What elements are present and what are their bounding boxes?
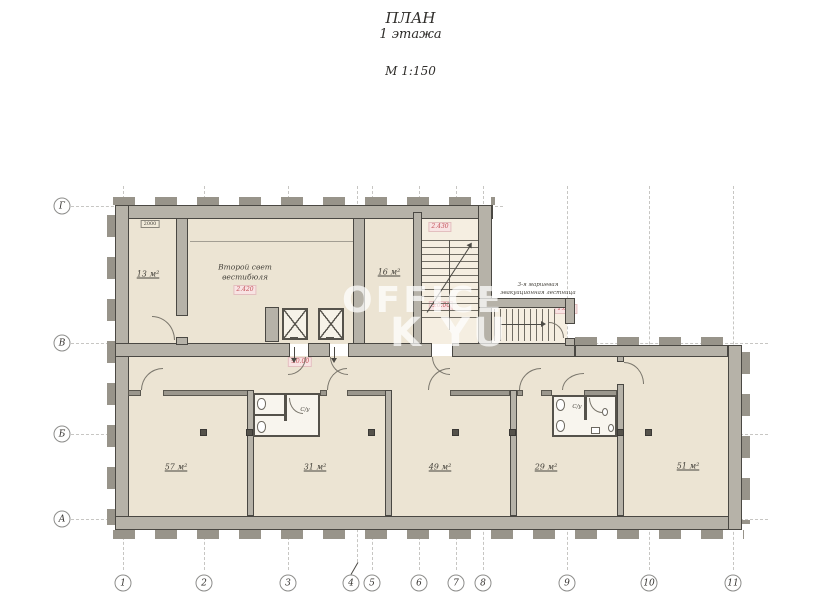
wall-wing-top xyxy=(575,345,728,357)
corridor-wall-seg xyxy=(541,390,552,396)
room-31-area-label: 31 м² xyxy=(304,463,327,472)
axis-bubble-col-3: 3 xyxy=(280,575,297,592)
wall-29-51 xyxy=(617,384,624,516)
toilet-icon xyxy=(556,399,565,411)
elevation-mark-stair-top: 2.430 xyxy=(428,222,451,232)
pilaster-strip-left xyxy=(107,215,115,525)
room-16-area-label: 16 м² xyxy=(378,268,401,277)
axis-bubble-col-9: 9 xyxy=(559,575,576,592)
column-marker xyxy=(200,429,207,436)
arrow-head xyxy=(291,358,297,366)
room-57-area-label: 57 м² xyxy=(165,463,188,472)
corridor-wall-seg xyxy=(517,390,523,396)
lobby-pier xyxy=(265,307,279,342)
axis-bubble-col-5: 5 xyxy=(364,575,381,592)
column-marker xyxy=(617,429,624,436)
corridor-wall-seg xyxy=(163,390,253,396)
urinal-icon xyxy=(608,424,614,432)
axis-bubble-col-10: 10 xyxy=(641,575,658,592)
wall-top xyxy=(115,205,493,219)
toilet-icon xyxy=(257,398,266,410)
wall-row-v-seg xyxy=(115,343,290,357)
axis-bubble-col-7: 7 xyxy=(448,575,465,592)
toilet-icon xyxy=(556,420,565,432)
vestibule-label-line1: Второй свет xyxy=(218,263,272,272)
evac-stair-note-line2: эвакуационная лестница xyxy=(500,290,575,296)
axis-bubble-col-2: 2 xyxy=(196,575,213,592)
floor-plan-canvas: ПЛАН 1 этажа М 1:150 1 2 3 4 5 6 7 8 9 1… xyxy=(0,0,821,611)
wall-row-v-seg xyxy=(308,343,330,357)
dimension-label-2000: 2000 xyxy=(141,220,160,228)
axis-bubble-row-b: Б xyxy=(54,426,71,443)
room-29-area-label: 29 м² xyxy=(535,463,558,472)
wall-left xyxy=(115,205,129,530)
room-13-area-label: 13 м² xyxy=(137,270,160,279)
sink-icon xyxy=(591,427,600,434)
elevation-mark-vestibule: 2.420 xyxy=(233,285,256,295)
column-marker xyxy=(246,429,253,436)
pilaster-strip-right xyxy=(742,352,750,524)
watermark-line2: K YU xyxy=(390,310,508,356)
corridor-wall-seg xyxy=(128,390,141,396)
axis-bubble-row-a: А xyxy=(54,511,71,528)
arrow-head xyxy=(331,358,337,366)
wall-31-49 xyxy=(385,390,392,516)
column-marker xyxy=(509,429,516,436)
elevator-shaft xyxy=(282,308,308,340)
down-arrow-icon xyxy=(334,347,335,361)
elevator-shaft xyxy=(318,308,344,340)
column-marker xyxy=(452,429,459,436)
wall-right-wing xyxy=(728,345,742,530)
elevator-door-mark xyxy=(290,337,298,340)
axis-bubble-row-v: В xyxy=(54,335,71,352)
wall-annex-right xyxy=(565,338,575,346)
wall-13-vestibule xyxy=(176,218,188,316)
room-49-area-label: 49 м² xyxy=(429,463,452,472)
column-marker xyxy=(368,429,375,436)
corridor-wall-seg xyxy=(320,390,327,396)
arrow-head xyxy=(541,321,549,327)
axis-bubble-col-8: 8 xyxy=(475,575,492,592)
wall-49-29 xyxy=(510,390,517,516)
pilaster-strip-wing-top xyxy=(575,337,730,345)
plan-title-line2: 1 этажа xyxy=(0,27,821,42)
pilaster-strip-bottom xyxy=(113,530,744,539)
plan-title-line1: ПЛАН xyxy=(0,9,821,27)
down-arrow-icon xyxy=(294,347,295,361)
room-51-area-label: 51 м² xyxy=(677,462,700,471)
axis-bubble-col-11: 11 xyxy=(725,575,742,592)
axis-bubble-row-g: Г xyxy=(54,198,71,215)
wall-29-51 xyxy=(617,356,624,362)
urinal-icon xyxy=(602,408,608,416)
column-marker xyxy=(645,429,652,436)
wall-13-vestibule xyxy=(176,337,188,345)
wall-bottom xyxy=(115,516,742,530)
axis-bubble-col-6: 6 xyxy=(411,575,428,592)
elevator-door-mark xyxy=(326,337,334,340)
second-light-edge-line xyxy=(190,241,353,242)
plan-scale: М 1:150 xyxy=(0,64,821,78)
axis-bubble-col-4: 4 xyxy=(343,575,360,592)
wall-annex-right xyxy=(565,298,575,324)
axis-bubble-col-1: 1 xyxy=(115,575,132,592)
toilet-icon xyxy=(257,421,266,433)
axis-4-leader xyxy=(351,562,359,575)
vestibule-label-line2: вестибюля xyxy=(222,273,268,282)
corridor-wall-seg xyxy=(450,390,510,396)
evac-stair-note-line1: 3-я маршевая xyxy=(518,282,559,288)
pilaster-strip-top xyxy=(113,197,495,205)
